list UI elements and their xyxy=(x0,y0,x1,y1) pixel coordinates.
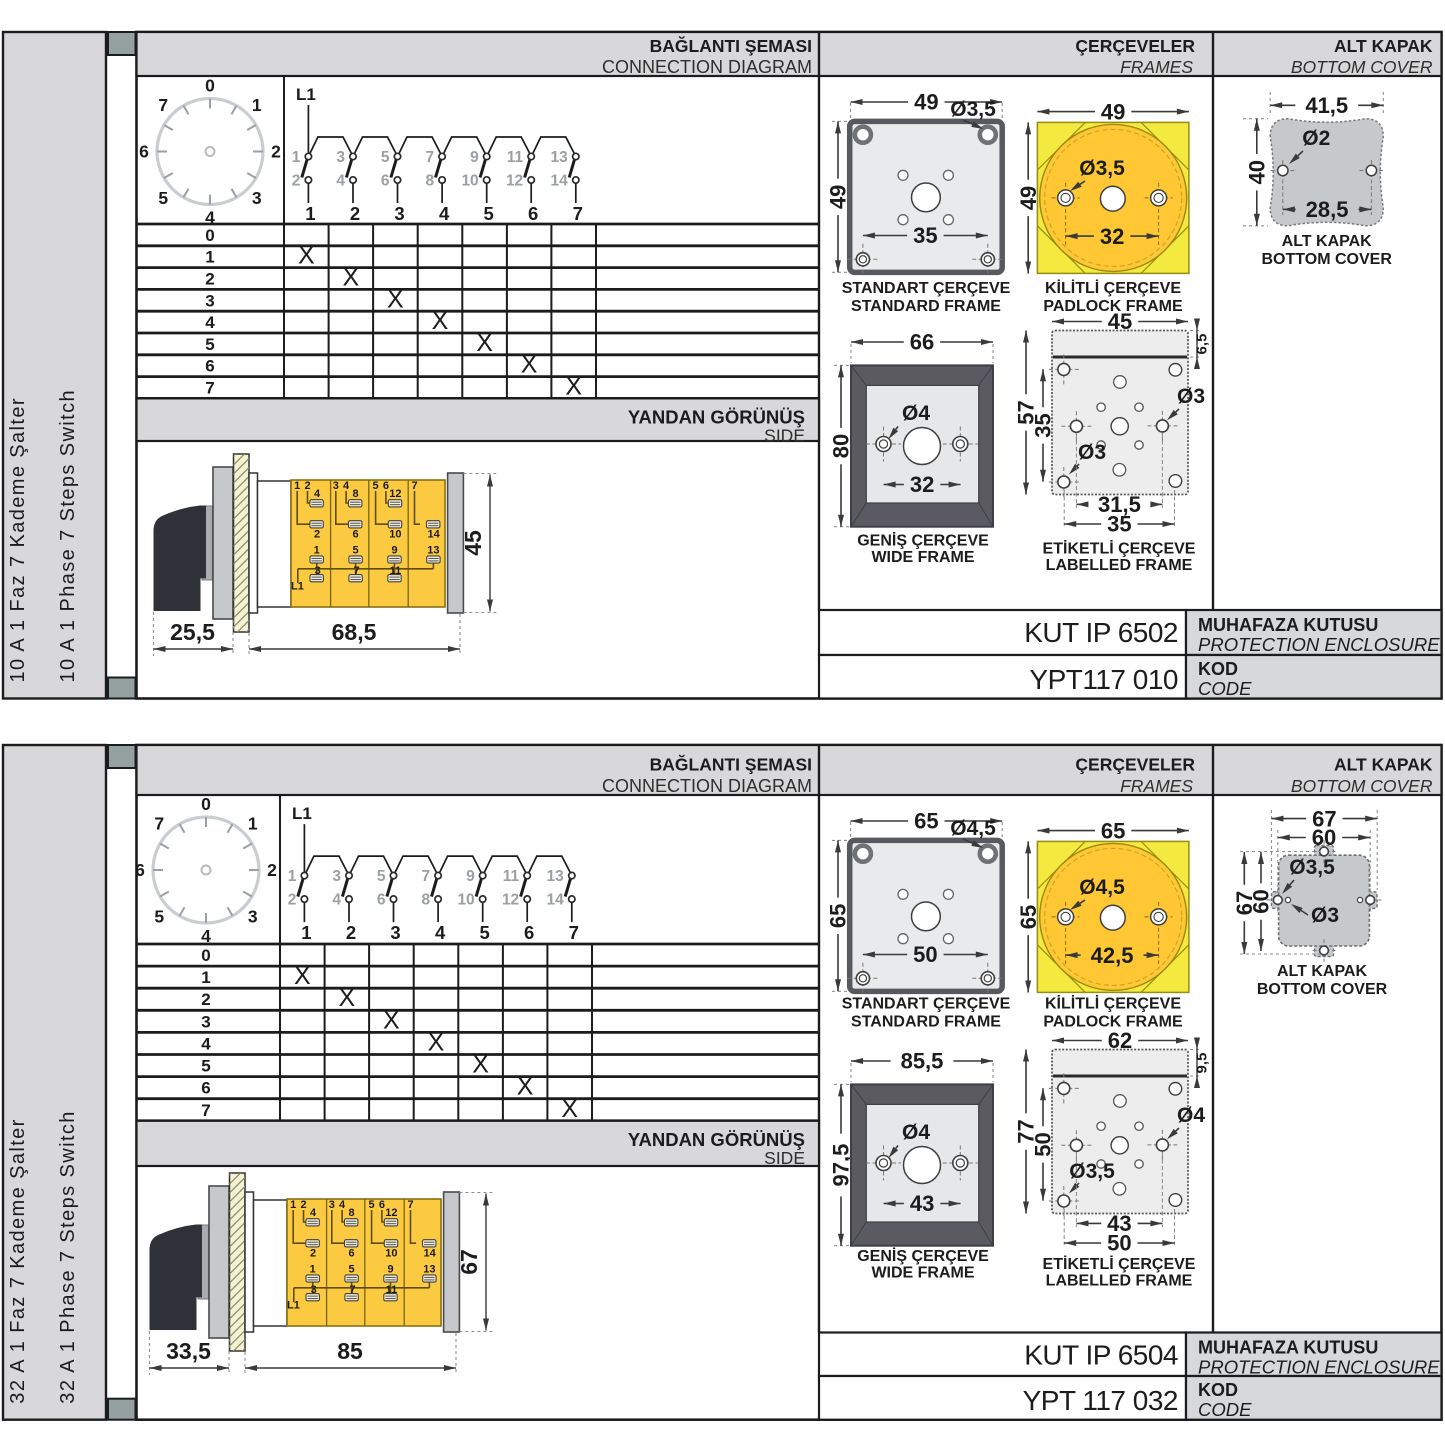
svg-text:5: 5 xyxy=(349,1264,355,1276)
svg-text:60: 60 xyxy=(1249,889,1274,913)
svg-text:ETİKETLİ ÇERÇEVE: ETİKETLİ ÇERÇEVE xyxy=(1043,540,1196,558)
svg-text:6: 6 xyxy=(353,529,359,541)
svg-text:KOD: KOD xyxy=(1198,659,1238,679)
svg-text:ALT KAPAK: ALT KAPAK xyxy=(1334,36,1433,56)
svg-text:PROTECTION ENCLOSURE: PROTECTION ENCLOSURE xyxy=(1198,634,1440,655)
svg-text:2: 2 xyxy=(271,142,281,162)
svg-text:35: 35 xyxy=(913,223,937,248)
svg-text:FRAMES: FRAMES xyxy=(1120,776,1193,796)
svg-text:YPT117 010: YPT117 010 xyxy=(1029,664,1178,695)
svg-text:85,5: 85,5 xyxy=(901,1049,944,1074)
svg-text:Ø3: Ø3 xyxy=(1177,385,1205,408)
svg-text:BOTTOM COVER: BOTTOM COVER xyxy=(1291,776,1433,796)
svg-text:28,5: 28,5 xyxy=(1306,197,1349,222)
svg-text:35: 35 xyxy=(1107,512,1131,537)
svg-text:6: 6 xyxy=(379,1199,385,1211)
svg-text:BOTTOM COVER: BOTTOM COVER xyxy=(1257,981,1388,998)
svg-text:3: 3 xyxy=(390,922,400,943)
svg-text:13: 13 xyxy=(547,868,565,885)
svg-text:1: 1 xyxy=(201,968,210,987)
svg-text:11: 11 xyxy=(503,868,520,885)
svg-text:2: 2 xyxy=(314,529,320,541)
svg-text:3: 3 xyxy=(205,291,214,310)
svg-text:49: 49 xyxy=(1101,99,1125,124)
svg-text:35: 35 xyxy=(1031,413,1056,437)
svg-text:1: 1 xyxy=(205,248,214,267)
svg-text:3: 3 xyxy=(336,149,345,166)
svg-text:7: 7 xyxy=(411,480,417,492)
svg-text:Ø4,5: Ø4,5 xyxy=(1079,876,1125,899)
svg-text:13: 13 xyxy=(427,545,439,557)
svg-text:43: 43 xyxy=(910,1191,934,1216)
svg-text:12: 12 xyxy=(385,1207,397,1219)
svg-text:FRAMES: FRAMES xyxy=(1120,57,1193,77)
svg-text:3: 3 xyxy=(311,1284,317,1296)
svg-text:6: 6 xyxy=(524,922,534,943)
svg-text:5: 5 xyxy=(480,922,490,943)
svg-text:67: 67 xyxy=(456,1249,482,1275)
svg-text:L1: L1 xyxy=(296,85,316,104)
svg-text:4: 4 xyxy=(336,173,345,190)
svg-text:CONNECTION DIAGRAM: CONNECTION DIAGRAM xyxy=(602,776,812,796)
svg-text:ALT KAPAK: ALT KAPAK xyxy=(1334,755,1433,775)
svg-text:ALT KAPAK: ALT KAPAK xyxy=(1277,963,1368,980)
svg-text:8: 8 xyxy=(425,173,434,190)
svg-text:STANDARD FRAME: STANDARD FRAME xyxy=(851,1014,1001,1031)
svg-text:3: 3 xyxy=(394,203,404,224)
svg-text:40: 40 xyxy=(1245,160,1270,184)
svg-text:10: 10 xyxy=(457,892,474,909)
svg-text:X: X xyxy=(428,1029,445,1057)
svg-text:Ø2: Ø2 xyxy=(1302,127,1330,150)
svg-text:2: 2 xyxy=(201,990,210,1009)
svg-text:1: 1 xyxy=(301,922,311,943)
svg-text:L1: L1 xyxy=(292,804,312,823)
svg-text:X: X xyxy=(476,329,493,357)
svg-text:6: 6 xyxy=(205,357,214,376)
svg-text:11: 11 xyxy=(390,565,402,577)
svg-text:1: 1 xyxy=(248,813,258,833)
svg-text:ÇERÇEVELER: ÇERÇEVELER xyxy=(1075,755,1195,775)
svg-text:11: 11 xyxy=(386,1284,398,1296)
svg-text:STANDARD FRAME: STANDARD FRAME xyxy=(851,298,1001,315)
svg-text:10: 10 xyxy=(461,173,478,190)
svg-text:5: 5 xyxy=(381,149,390,166)
svg-text:2: 2 xyxy=(267,860,277,880)
svg-text:66: 66 xyxy=(910,330,934,355)
svg-text:YANDAN GÖRÜNÜŞ: YANDAN GÖRÜNÜŞ xyxy=(628,406,805,427)
svg-text:1: 1 xyxy=(305,203,315,224)
svg-text:9,5: 9,5 xyxy=(1194,1053,1211,1074)
svg-text:2: 2 xyxy=(304,480,310,492)
svg-text:X: X xyxy=(387,285,404,313)
svg-text:Ø3: Ø3 xyxy=(1311,904,1339,927)
svg-text:PROTECTION ENCLOSURE: PROTECTION ENCLOSURE xyxy=(1198,1357,1440,1378)
svg-text:X: X xyxy=(521,351,538,379)
svg-text:13: 13 xyxy=(423,1264,435,1276)
svg-text:YPT 117 032: YPT 117 032 xyxy=(1023,1385,1178,1416)
svg-text:1: 1 xyxy=(288,868,297,885)
svg-text:4: 4 xyxy=(314,488,321,500)
svg-text:LABELLED FRAME: LABELLED FRAME xyxy=(1046,1273,1193,1290)
svg-text:KUT IP 6502: KUT IP 6502 xyxy=(1024,617,1178,648)
svg-text:STANDART ÇERÇEVE: STANDART ÇERÇEVE xyxy=(842,996,1011,1013)
svg-text:Ø3,5: Ø3,5 xyxy=(1079,157,1125,180)
svg-text:LABELLED FRAME: LABELLED FRAME xyxy=(1046,557,1193,574)
svg-text:9: 9 xyxy=(470,149,479,166)
svg-text:CODE: CODE xyxy=(1198,678,1252,699)
svg-text:3: 3 xyxy=(315,565,321,577)
svg-text:2: 2 xyxy=(310,1248,316,1260)
svg-text:0: 0 xyxy=(205,76,215,96)
svg-text:WIDE FRAME: WIDE FRAME xyxy=(871,1265,974,1282)
svg-text:12: 12 xyxy=(502,892,519,909)
svg-text:0: 0 xyxy=(205,226,214,245)
svg-text:5: 5 xyxy=(373,480,379,492)
svg-text:X: X xyxy=(383,1006,400,1034)
svg-text:ETİKETLİ ÇERÇEVE: ETİKETLİ ÇERÇEVE xyxy=(1043,1255,1196,1273)
svg-text:3: 3 xyxy=(329,1199,335,1211)
svg-text:6: 6 xyxy=(139,142,149,162)
svg-text:85: 85 xyxy=(337,1338,363,1364)
svg-text:ÇERÇEVELER: ÇERÇEVELER xyxy=(1075,36,1195,56)
svg-text:45: 45 xyxy=(460,530,486,556)
svg-text:X: X xyxy=(517,1073,534,1101)
svg-text:13: 13 xyxy=(551,149,569,166)
svg-text:8: 8 xyxy=(349,1207,355,1219)
svg-text:6: 6 xyxy=(377,892,386,909)
svg-text:5: 5 xyxy=(377,868,386,885)
svg-text:7: 7 xyxy=(421,868,430,885)
svg-text:50: 50 xyxy=(1107,1231,1131,1256)
svg-text:10: 10 xyxy=(385,1248,397,1260)
svg-text:X: X xyxy=(432,307,449,335)
svg-text:Ø4,5: Ø4,5 xyxy=(950,817,996,840)
svg-text:CODE: CODE xyxy=(1198,1399,1252,1420)
svg-text:11: 11 xyxy=(507,149,524,166)
svg-text:KİLİTLİ ÇERÇEVE: KİLİTLİ ÇERÇEVE xyxy=(1045,995,1181,1013)
svg-text:3: 3 xyxy=(332,868,341,885)
svg-text:5: 5 xyxy=(484,203,494,224)
svg-text:3: 3 xyxy=(248,907,258,927)
svg-text:1: 1 xyxy=(294,480,300,492)
svg-text:X: X xyxy=(561,1095,578,1123)
svg-text:14: 14 xyxy=(427,529,440,541)
svg-text:8: 8 xyxy=(353,488,359,500)
svg-text:BAĞLANTI ŞEMASI: BAĞLANTI ŞEMASI xyxy=(650,754,812,775)
svg-text:32 A 1 Faz 7 Kademe Şalter: 32 A 1 Faz 7 Kademe Şalter xyxy=(7,1118,29,1403)
svg-text:10 A 1 Faz 7 Kademe Şalter: 10 A 1 Faz 7 Kademe Şalter xyxy=(7,397,29,682)
svg-text:1: 1 xyxy=(314,545,320,557)
svg-text:49: 49 xyxy=(914,90,938,115)
svg-text:41,5: 41,5 xyxy=(1305,93,1348,118)
svg-text:2: 2 xyxy=(205,270,214,289)
svg-text:4: 4 xyxy=(435,922,446,943)
svg-text:2: 2 xyxy=(350,203,360,224)
svg-text:BAĞLANTI ŞEMASI: BAĞLANTI ŞEMASI xyxy=(650,35,812,56)
svg-text:10: 10 xyxy=(389,529,401,541)
svg-text:1: 1 xyxy=(310,1264,316,1276)
svg-text:10 A 1 Phase 7 Steps Switch: 10 A 1 Phase 7 Steps Switch xyxy=(57,389,79,683)
svg-text:YANDAN GÖRÜNÜŞ: YANDAN GÖRÜNÜŞ xyxy=(628,1129,805,1150)
svg-text:9: 9 xyxy=(387,1264,393,1276)
svg-text:50: 50 xyxy=(913,942,937,967)
svg-text:STANDART ÇERÇEVE: STANDART ÇERÇEVE xyxy=(842,280,1011,297)
svg-text:5: 5 xyxy=(369,1199,375,1211)
svg-text:7: 7 xyxy=(569,922,579,943)
svg-text:0: 0 xyxy=(201,946,210,965)
svg-text:14: 14 xyxy=(551,173,569,190)
svg-text:MUHAFAZA KUTUSU: MUHAFAZA KUTUSU xyxy=(1198,615,1378,635)
svg-text:42,5: 42,5 xyxy=(1091,943,1134,968)
svg-text:3: 3 xyxy=(201,1012,210,1031)
svg-text:4: 4 xyxy=(332,892,341,909)
svg-text:32: 32 xyxy=(1100,224,1124,249)
svg-text:4: 4 xyxy=(339,1199,346,1211)
svg-text:68,5: 68,5 xyxy=(332,619,377,645)
svg-text:CONNECTION DIAGRAM: CONNECTION DIAGRAM xyxy=(602,57,812,77)
svg-text:6: 6 xyxy=(383,480,389,492)
svg-text:7: 7 xyxy=(201,1101,210,1120)
svg-text:1: 1 xyxy=(292,149,301,166)
svg-text:5: 5 xyxy=(158,188,168,208)
svg-text:2: 2 xyxy=(346,922,356,943)
svg-text:X: X xyxy=(343,264,360,292)
svg-text:32: 32 xyxy=(910,472,934,497)
svg-text:X: X xyxy=(472,1051,489,1079)
svg-text:Ø3,5: Ø3,5 xyxy=(950,98,996,121)
svg-text:X: X xyxy=(339,984,356,1012)
svg-text:Ø4: Ø4 xyxy=(1177,1104,1205,1127)
svg-text:9: 9 xyxy=(466,868,475,885)
svg-text:80: 80 xyxy=(829,434,854,458)
svg-text:2: 2 xyxy=(300,1199,306,1211)
svg-text:SIDE: SIDE xyxy=(764,1148,805,1168)
svg-text:7: 7 xyxy=(425,149,434,166)
svg-text:4: 4 xyxy=(201,1035,211,1054)
svg-text:6: 6 xyxy=(135,860,145,880)
svg-text:12: 12 xyxy=(389,488,401,500)
svg-text:X: X xyxy=(298,242,315,270)
svg-text:3: 3 xyxy=(252,188,262,208)
svg-text:7: 7 xyxy=(407,1199,413,1211)
svg-text:4: 4 xyxy=(439,203,450,224)
svg-text:50: 50 xyxy=(1031,1132,1056,1156)
svg-text:MUHAFAZA KUTUSU: MUHAFAZA KUTUSU xyxy=(1198,1338,1378,1358)
svg-text:5: 5 xyxy=(205,335,214,354)
svg-text:4: 4 xyxy=(343,480,350,492)
svg-text:7: 7 xyxy=(154,813,164,833)
svg-text:WIDE FRAME: WIDE FRAME xyxy=(871,549,974,566)
svg-text:5: 5 xyxy=(154,907,164,927)
svg-text:GENİŞ ÇERÇEVE: GENİŞ ÇERÇEVE xyxy=(857,532,989,550)
svg-text:1: 1 xyxy=(290,1199,296,1211)
svg-text:25,5: 25,5 xyxy=(170,619,215,645)
svg-text:7: 7 xyxy=(573,203,583,224)
svg-text:97,5: 97,5 xyxy=(829,1144,854,1187)
svg-text:X: X xyxy=(294,962,311,990)
svg-text:X: X xyxy=(565,373,582,401)
svg-text:6,5: 6,5 xyxy=(1194,334,1211,355)
svg-text:7: 7 xyxy=(350,1284,356,1296)
svg-text:3: 3 xyxy=(333,480,339,492)
svg-text:65: 65 xyxy=(914,809,938,834)
svg-text:ALT KAPAK: ALT KAPAK xyxy=(1282,233,1373,250)
svg-text:Ø3,5: Ø3,5 xyxy=(1289,856,1335,879)
svg-text:8: 8 xyxy=(421,892,430,909)
svg-text:Ø4: Ø4 xyxy=(902,402,930,425)
svg-text:2: 2 xyxy=(292,173,301,190)
svg-text:GENİŞ ÇERÇEVE: GENİŞ ÇERÇEVE xyxy=(857,1247,989,1265)
svg-text:BOTTOM COVER: BOTTOM COVER xyxy=(1291,57,1433,77)
svg-text:5: 5 xyxy=(201,1057,210,1076)
svg-text:12: 12 xyxy=(506,173,523,190)
svg-text:33,5: 33,5 xyxy=(166,1338,211,1364)
svg-text:Ø3: Ø3 xyxy=(1078,441,1106,464)
svg-text:5: 5 xyxy=(353,545,359,557)
svg-text:4: 4 xyxy=(310,1207,317,1219)
svg-text:SIDE: SIDE xyxy=(764,425,805,445)
svg-text:L1: L1 xyxy=(287,1300,300,1312)
svg-text:Ø4: Ø4 xyxy=(902,1121,930,1144)
svg-text:14: 14 xyxy=(423,1248,436,1260)
svg-text:7: 7 xyxy=(354,565,360,577)
svg-text:KOD: KOD xyxy=(1198,1380,1238,1400)
svg-text:6: 6 xyxy=(381,173,390,190)
svg-text:65: 65 xyxy=(1101,818,1125,843)
svg-text:1: 1 xyxy=(252,95,262,115)
svg-text:7: 7 xyxy=(158,95,168,115)
svg-text:2: 2 xyxy=(288,892,297,909)
svg-text:32 A 1 Phase 7 Steps Switch: 32 A 1 Phase 7 Steps Switch xyxy=(57,1110,79,1404)
svg-text:L1: L1 xyxy=(291,581,304,593)
svg-text:KUT IP 6504: KUT IP 6504 xyxy=(1024,1340,1178,1371)
svg-text:9: 9 xyxy=(391,545,397,557)
svg-text:6: 6 xyxy=(349,1248,355,1260)
svg-text:4: 4 xyxy=(205,313,215,332)
svg-text:KİLİTLİ ÇERÇEVE: KİLİTLİ ÇERÇEVE xyxy=(1045,279,1181,297)
svg-text:14: 14 xyxy=(547,892,565,909)
svg-text:7: 7 xyxy=(205,379,214,398)
svg-text:0: 0 xyxy=(201,794,211,814)
svg-text:6: 6 xyxy=(528,203,538,224)
svg-text:BOTTOM COVER: BOTTOM COVER xyxy=(1262,251,1393,268)
svg-text:60: 60 xyxy=(1312,825,1336,850)
svg-text:6: 6 xyxy=(201,1079,210,1098)
